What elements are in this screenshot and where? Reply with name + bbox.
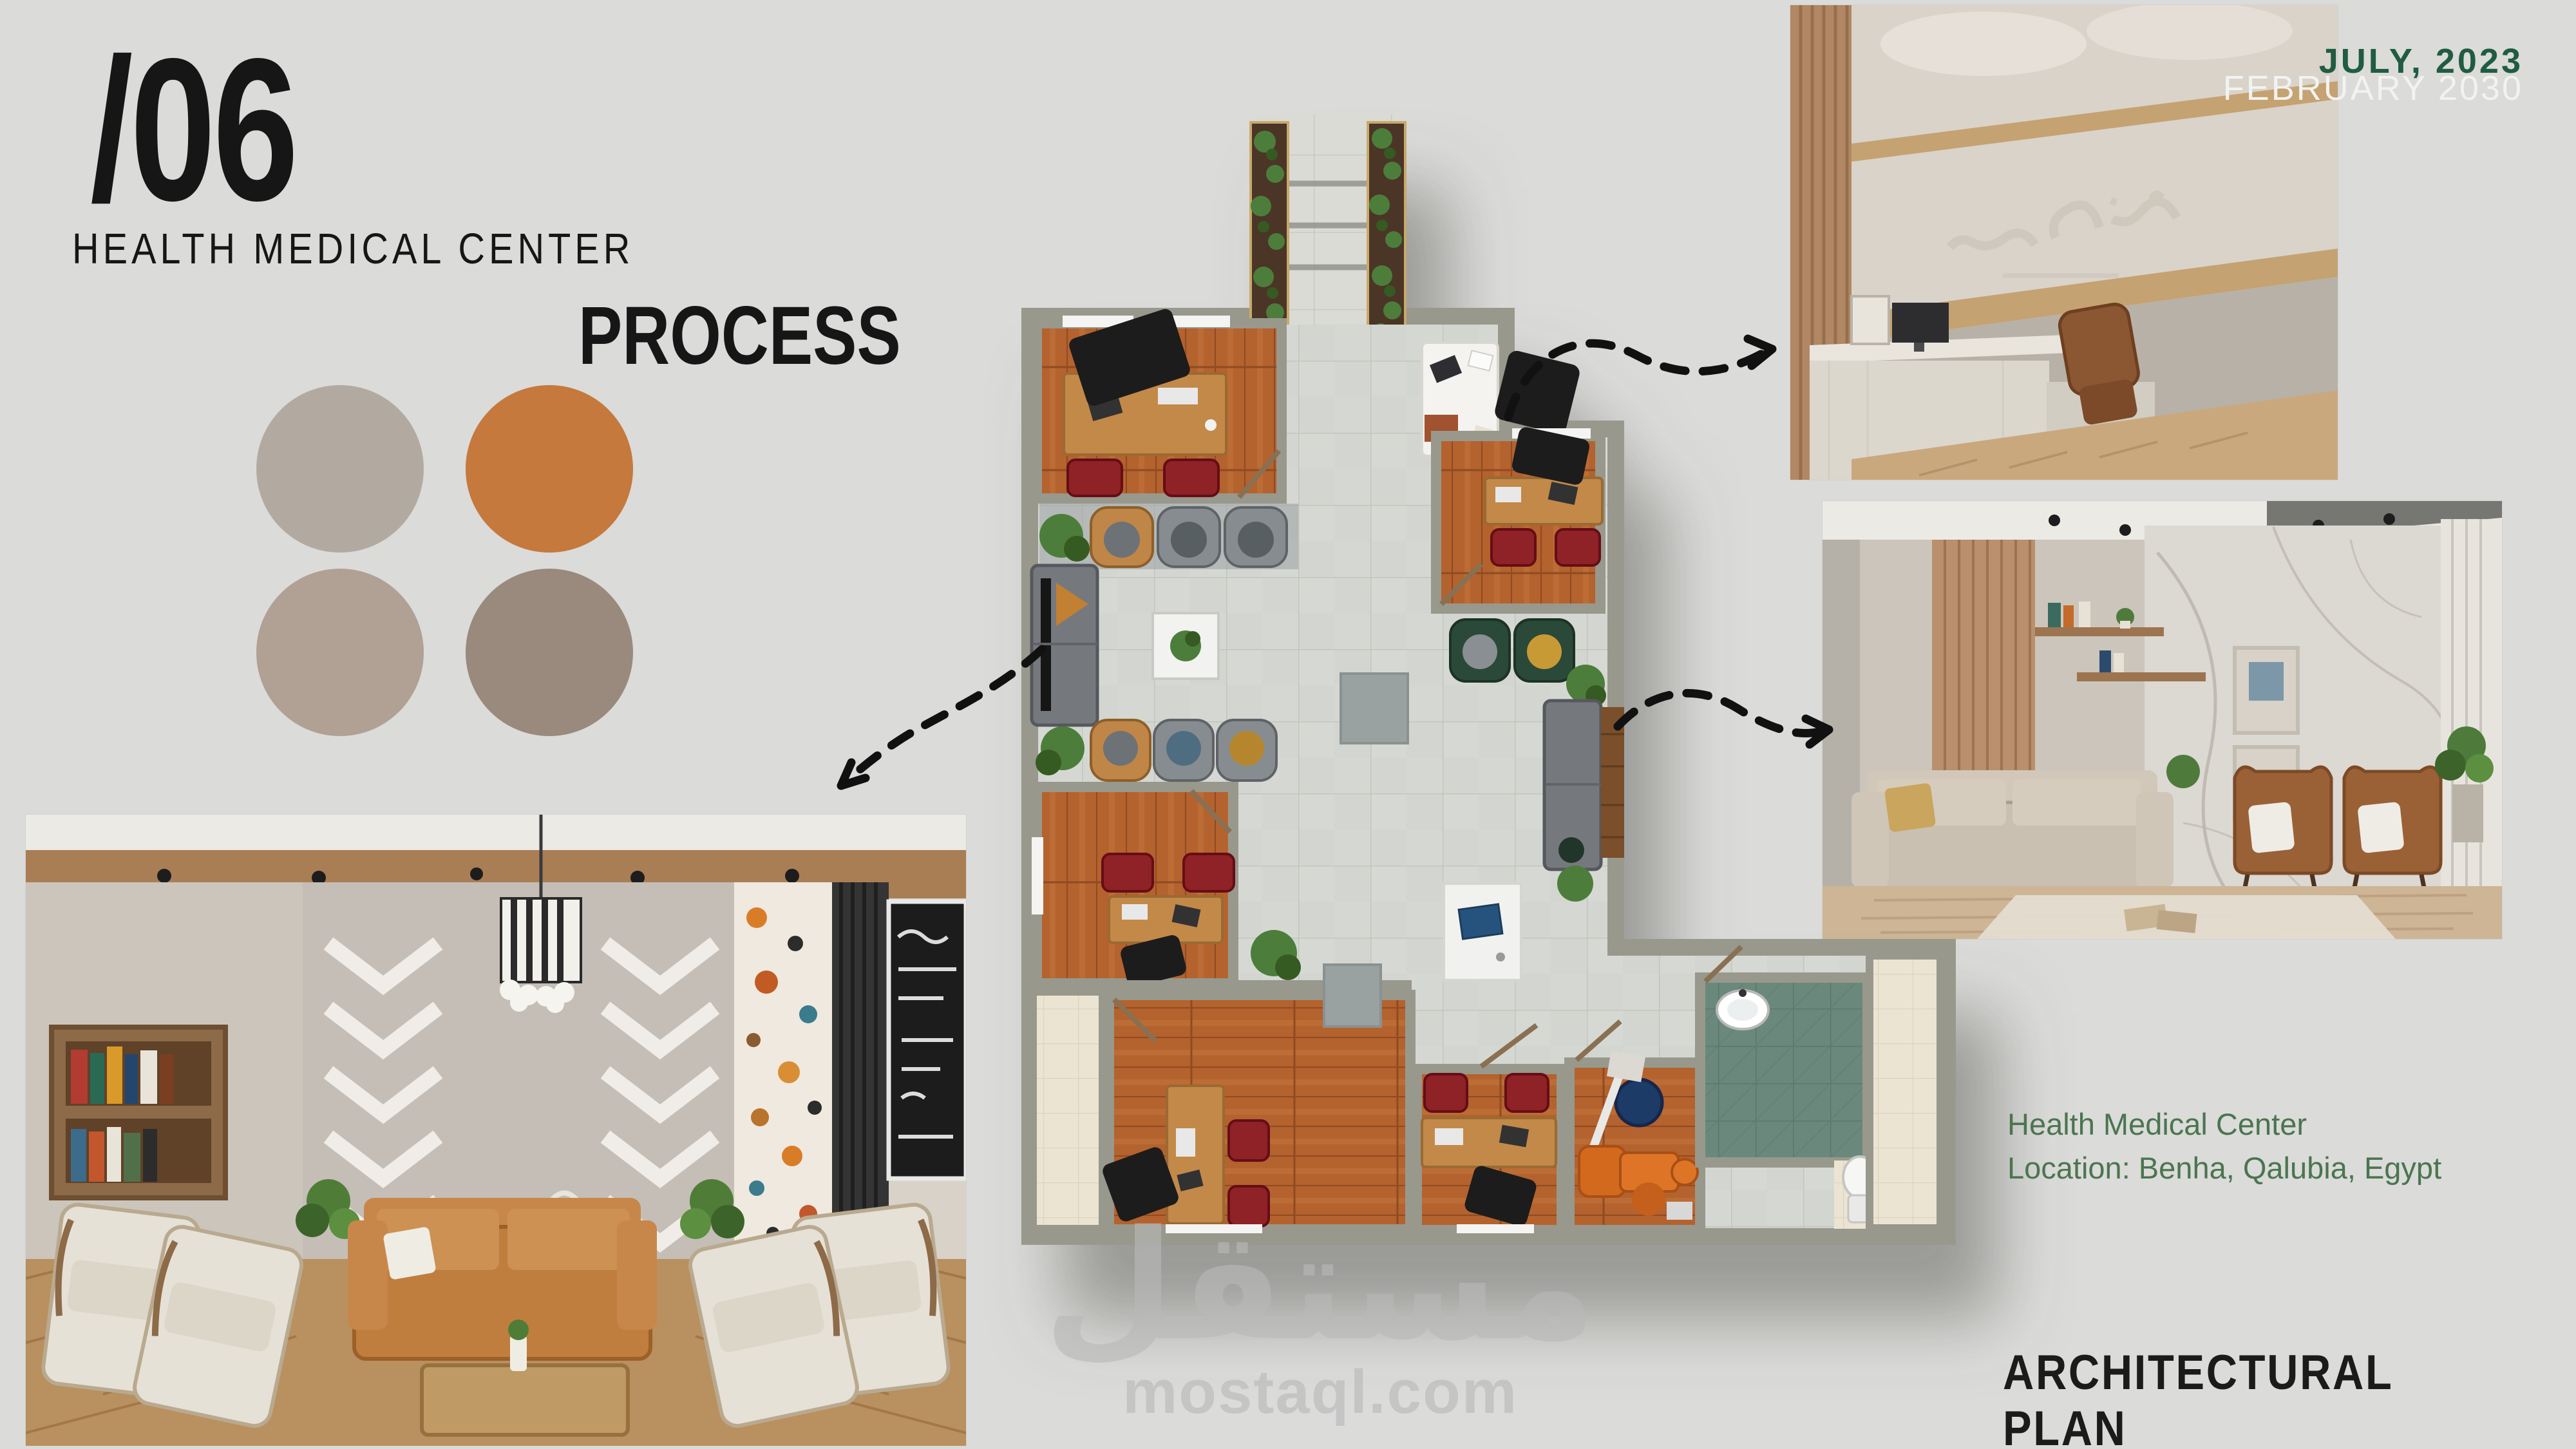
office-top-left xyxy=(1037,307,1282,498)
office-top-right xyxy=(1436,426,1602,609)
visitor-chair xyxy=(1103,854,1153,891)
dentist-stool xyxy=(1616,1079,1662,1126)
tub-chair-yellow-pillow xyxy=(1217,720,1276,781)
tan-sofa xyxy=(348,1198,657,1359)
callout-arrows xyxy=(841,339,1829,786)
stone-block xyxy=(1341,674,1408,743)
desk xyxy=(1064,374,1226,455)
visitor-chair xyxy=(1492,529,1535,565)
palette-swatch-warm-gray xyxy=(256,385,424,553)
arrowhead xyxy=(1748,339,1772,366)
green-armchairs xyxy=(1450,620,1574,681)
window xyxy=(1063,316,1133,327)
dental-lamp xyxy=(1607,1051,1645,1083)
door-swing xyxy=(1577,1021,1620,1060)
visitor-chair xyxy=(1425,1074,1467,1112)
plant xyxy=(1557,866,1593,902)
waiting-photo xyxy=(1823,501,2502,939)
window xyxy=(1032,837,1043,914)
watermark: مستقل mostaql.com xyxy=(979,1211,1662,1428)
vase xyxy=(510,1335,527,1371)
orange-pillow xyxy=(1056,583,1088,626)
lobby-sofa xyxy=(1032,565,1097,725)
gold-pillow xyxy=(1884,782,1937,832)
window xyxy=(1512,428,1591,439)
lobby-photo-art xyxy=(26,815,966,1446)
project-name: Health Medical Center xyxy=(2007,1103,2441,1146)
color-palette xyxy=(256,385,636,736)
laptop xyxy=(1088,393,1123,421)
date-block: JULY, 2023 FEBRUARY 2030 xyxy=(2223,44,2523,106)
photo-frame xyxy=(1851,296,1889,344)
balcony-right xyxy=(1870,956,1940,1228)
door-swing xyxy=(1705,947,1741,981)
visitor-chair xyxy=(1506,1074,1548,1112)
palette-swatch-taupe xyxy=(256,569,424,736)
stone-block xyxy=(1324,965,1381,1027)
office-chair xyxy=(1511,426,1591,486)
office-bottom-left xyxy=(1101,995,1410,1233)
door-swing xyxy=(1191,791,1230,832)
plant xyxy=(1039,514,1090,562)
palette-swatch-brown-gray xyxy=(466,569,633,736)
door-swing xyxy=(1114,999,1155,1041)
plant-small xyxy=(2166,755,2200,788)
display-table xyxy=(1444,884,1521,980)
waiting-row-lower xyxy=(1036,720,1276,781)
palette-swatch-terracotta xyxy=(466,385,633,553)
sofa-pillow xyxy=(383,1226,436,1280)
visitor-chair xyxy=(1184,854,1234,891)
plant xyxy=(1036,726,1084,775)
plant xyxy=(1566,665,1606,706)
door-swing xyxy=(1239,451,1279,497)
reception-desk xyxy=(1422,343,1498,456)
entrance-steps xyxy=(1261,184,1399,267)
dental-chair xyxy=(1579,1051,1698,1220)
tub-chair-gray xyxy=(1225,507,1287,567)
waiting-row-upper xyxy=(1039,504,1298,569)
office-chair xyxy=(1067,307,1192,408)
office-chair xyxy=(1119,934,1188,989)
visitor-chair xyxy=(1556,529,1600,565)
footer-label: ARCHITECTURAL PLAN xyxy=(2003,1345,2507,1449)
keyboard xyxy=(1158,388,1198,404)
reception-zone xyxy=(1422,343,1582,456)
watermark-arabic: مستقل xyxy=(979,1211,1662,1362)
lobby-photo xyxy=(26,815,966,1446)
corridor-plant xyxy=(1251,930,1301,980)
tub-chair-tan xyxy=(1091,507,1153,567)
visitor-chair xyxy=(1068,460,1122,496)
desk xyxy=(1109,896,1222,943)
project-info: Health Medical Center Location: Benha, Q… xyxy=(2007,1103,2441,1190)
console xyxy=(1601,707,1624,858)
slide-canvas: { "slide": { "background": "#dbdbd9", "s… xyxy=(0,0,2576,1449)
planter-right xyxy=(1368,122,1405,341)
instrument-cart xyxy=(1667,1202,1692,1220)
tub-chair-blue-pillow xyxy=(1154,720,1213,781)
bathroom xyxy=(1700,947,1888,1229)
entrance-walkway xyxy=(1251,115,1405,346)
lobby-table xyxy=(1153,613,1218,679)
framed-poster xyxy=(889,902,966,1179)
right-sofa xyxy=(1544,701,1624,902)
toilet xyxy=(1834,1157,1888,1229)
door-swing xyxy=(1481,1025,1537,1066)
desk xyxy=(1422,1118,1556,1167)
desk xyxy=(1485,478,1602,524)
blue-artwork xyxy=(1459,904,1502,939)
page-title: HEALTH MEDICAL CENTER xyxy=(72,224,634,274)
dark-pillow xyxy=(1558,837,1584,863)
page-subtitle: PROCESS xyxy=(578,289,901,383)
waiting-photo-art xyxy=(1823,501,2502,939)
reception-chair xyxy=(1493,349,1581,435)
sofa-shadow-line xyxy=(1041,578,1051,711)
wall-bookshelf xyxy=(52,1027,225,1198)
tub-chair-tan xyxy=(1091,720,1150,781)
sink xyxy=(1717,989,1768,1029)
date-secondary: FEBRUARY 2030 xyxy=(2223,71,2523,106)
window xyxy=(1159,316,1230,327)
visitor-chair xyxy=(1164,460,1218,496)
laptop xyxy=(1430,355,1462,383)
arrow-to-lobby-photo xyxy=(849,649,1042,779)
office-mid-left xyxy=(1032,787,1234,988)
arrow-to-reception-photo xyxy=(1508,343,1762,417)
section-number: /06 xyxy=(90,13,296,246)
planter-left xyxy=(1251,122,1288,341)
visitor-chair xyxy=(1229,1121,1269,1160)
arrowhead xyxy=(841,762,866,786)
arrow-to-waiting-photo xyxy=(1618,693,1820,733)
project-location: Location: Benha, Qalubia, Egypt xyxy=(2007,1146,2441,1190)
door-swing xyxy=(1441,564,1481,604)
balcony-left xyxy=(1033,992,1103,1229)
desk-mat xyxy=(1425,415,1458,442)
tub-chair-gray xyxy=(1158,507,1220,567)
